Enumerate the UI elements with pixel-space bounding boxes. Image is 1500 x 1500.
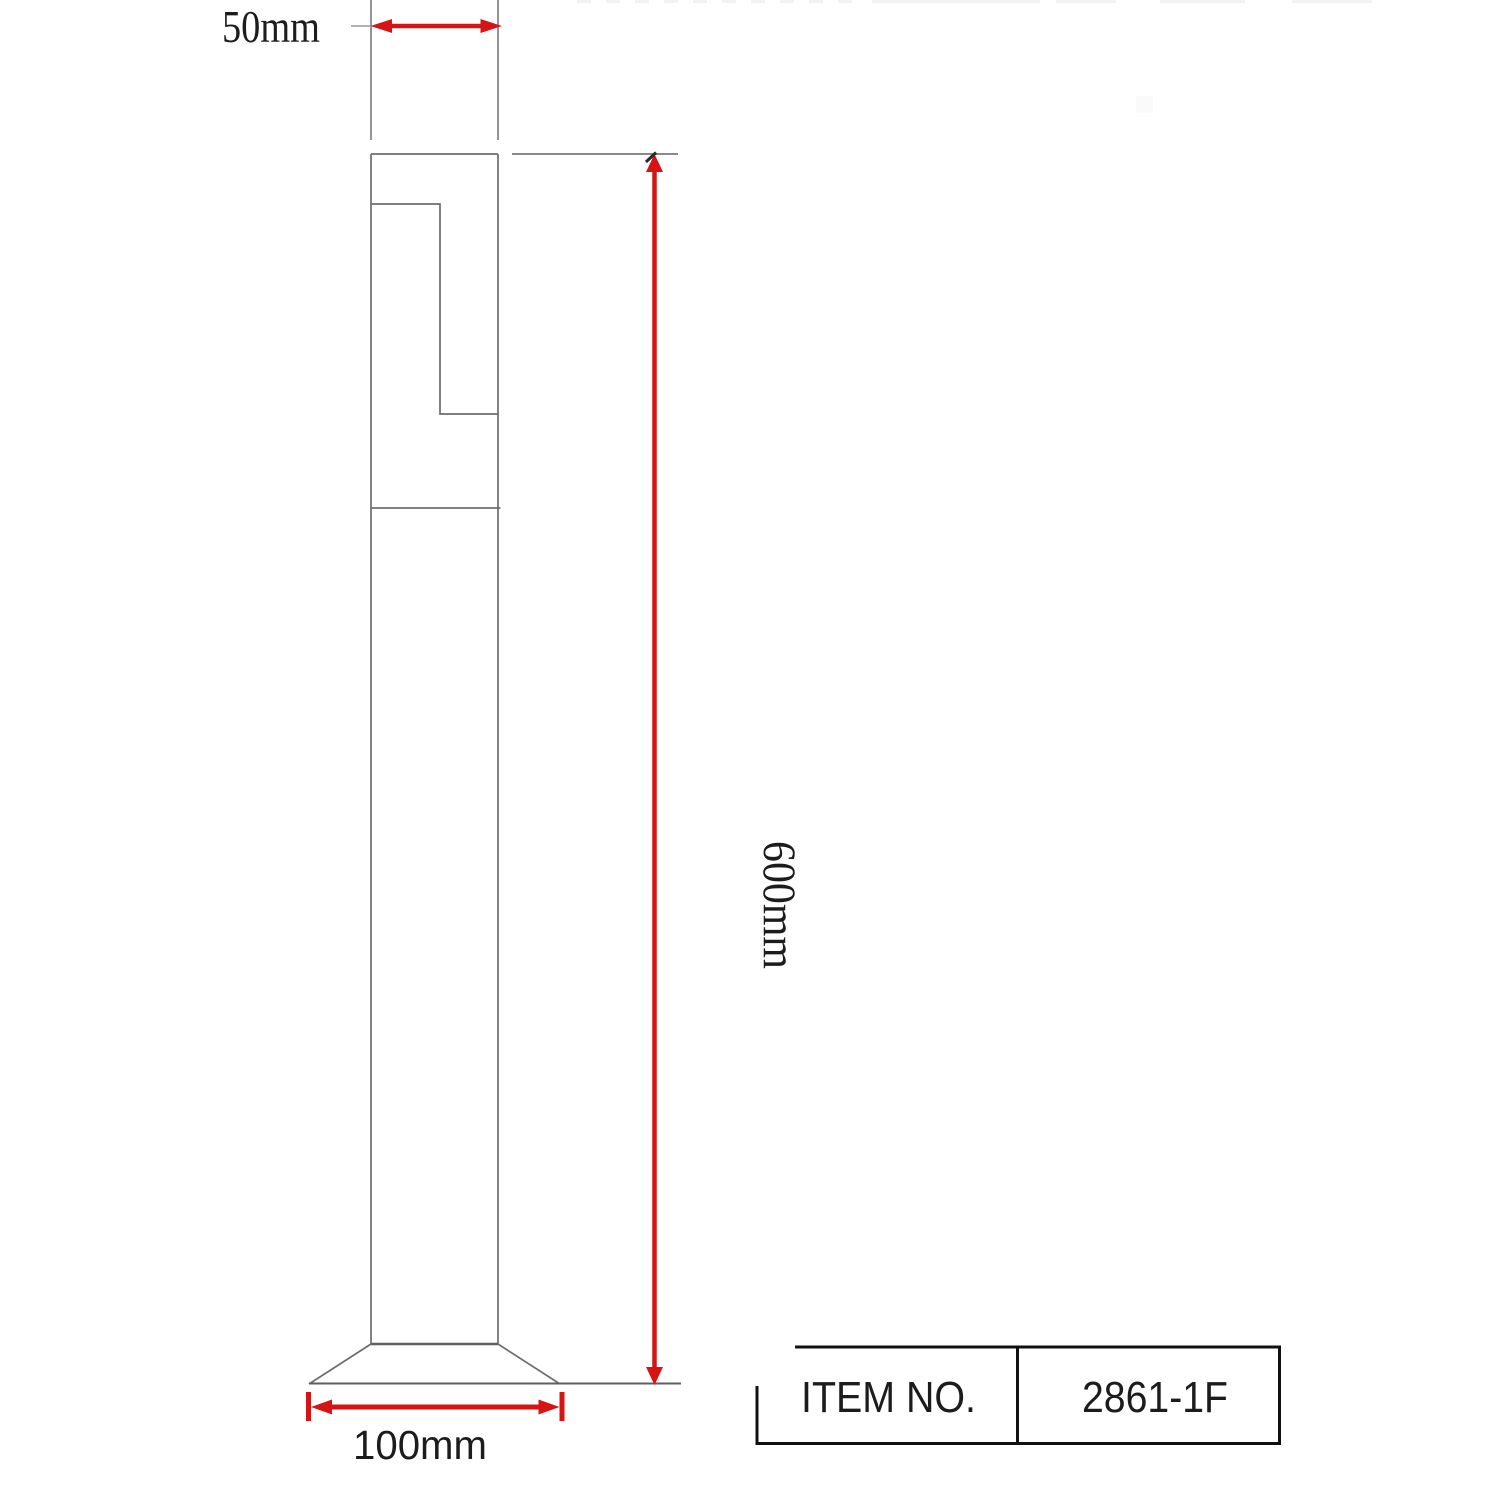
- svg-text:600mm: 600mm: [753, 841, 805, 969]
- svg-text:100mm: 100mm: [353, 1422, 487, 1468]
- svg-text:ITEM NO.: ITEM NO.: [801, 1373, 976, 1422]
- svg-text:2861-1F: 2861-1F: [1082, 1373, 1228, 1422]
- svg-text:50mm: 50mm: [222, 2, 320, 52]
